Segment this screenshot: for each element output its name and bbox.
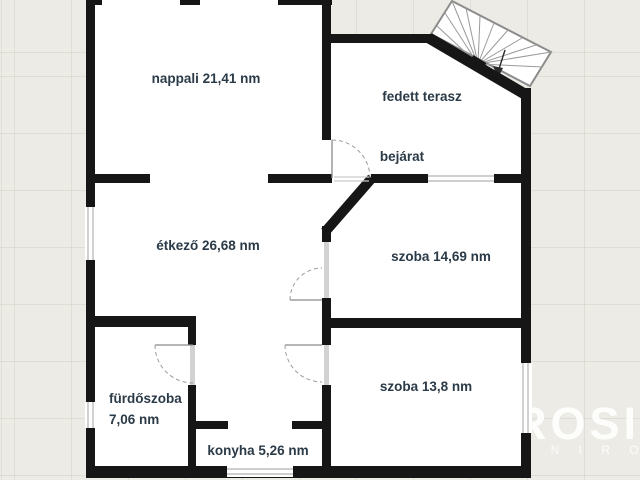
- room-label-bejarat: bejárat: [362, 149, 442, 164]
- window-szoba-13: [520, 363, 532, 433]
- window-etkezo: [85, 207, 96, 260]
- room-label-szoba-14: szoba 14,69 nm: [360, 249, 522, 264]
- room-label-furdoszoba: fürdőszoba 7,06 nm: [109, 388, 209, 430]
- window-szoba-14: [428, 173, 494, 184]
- room-label-nappali: nappali 21,41 nm: [120, 71, 292, 86]
- room-label-etkezo: étkező 26,68 nm: [118, 238, 298, 253]
- floor-plan-image: ROSI A N I R O D A: [0, 0, 640, 480]
- room-label-szoba-13: szoba 13,8 nm: [345, 379, 507, 394]
- window-konyha: [227, 465, 293, 477]
- room-label-furdoszoba-line1: fürdőszoba: [109, 391, 182, 406]
- room-label-konyha: konyha 5,26 nm: [178, 443, 338, 458]
- window-furdoszoba: [85, 402, 96, 428]
- room-label-fedett-terasz: fedett terasz: [348, 89, 496, 104]
- room-label-furdoszoba-line2: 7,06 nm: [109, 412, 159, 427]
- floor-plan-svg: [0, 0, 640, 480]
